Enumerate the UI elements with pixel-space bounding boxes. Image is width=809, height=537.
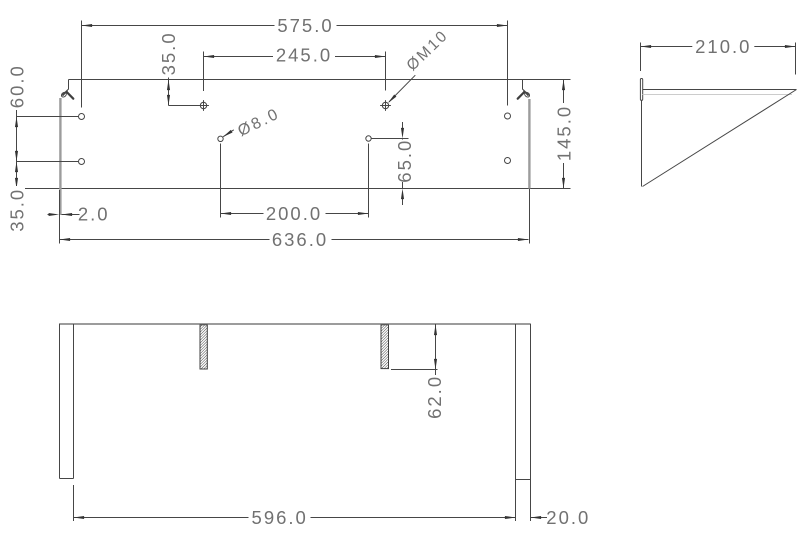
svg-text:210.0: 210.0 <box>695 36 751 57</box>
svg-text:245.0: 245.0 <box>276 45 332 66</box>
svg-text:35.0: 35.0 <box>6 188 27 232</box>
svg-text:65.0: 65.0 <box>394 139 415 183</box>
svg-text:145.0: 145.0 <box>554 105 575 161</box>
svg-text:636.0: 636.0 <box>272 229 328 250</box>
svg-text:20.0: 20.0 <box>546 507 590 528</box>
svg-text:575.0: 575.0 <box>277 15 333 36</box>
svg-text:35.0: 35.0 <box>158 31 179 75</box>
svg-text:2.0: 2.0 <box>78 203 110 224</box>
svg-text:Ø8.0: Ø8.0 <box>235 105 283 140</box>
svg-text:60.0: 60.0 <box>6 64 27 108</box>
svg-text:ØM10: ØM10 <box>403 27 452 75</box>
svg-text:596.0: 596.0 <box>252 507 308 528</box>
svg-text:200.0: 200.0 <box>266 203 322 224</box>
svg-text:62.0: 62.0 <box>424 375 445 419</box>
